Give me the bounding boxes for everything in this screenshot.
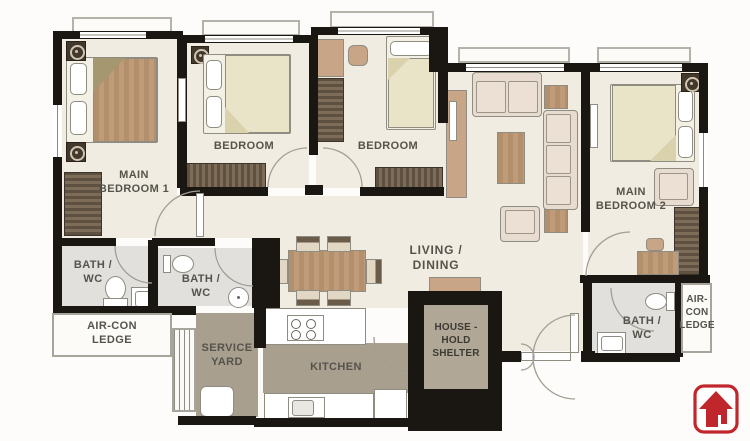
room-label-bath-3: BATH / WC bbox=[612, 314, 672, 342]
door-arc bbox=[268, 148, 307, 187]
door-arc bbox=[115, 246, 152, 283]
door-arc bbox=[374, 337, 408, 371]
label-line: BEDROOM 1 bbox=[86, 182, 182, 196]
label-line: BATH / bbox=[66, 258, 120, 272]
room-label-service-yard: SERVICE YARD bbox=[194, 341, 260, 369]
room-label-main-bedroom-2: MAIN BEDROOM 2 bbox=[592, 185, 670, 213]
label-line: MAIN bbox=[86, 168, 182, 182]
label-line: LEDGE bbox=[678, 320, 716, 333]
label-line: HOUSE - bbox=[424, 322, 488, 335]
room-label-aircon-ledge-left: AIR-CON LEDGE bbox=[60, 319, 164, 347]
room-label-bath-1: BATH / WC bbox=[66, 258, 120, 286]
label-line: BATH / bbox=[174, 272, 228, 286]
label-line: AIR-CON bbox=[60, 319, 164, 333]
floor-plan: MAIN BEDROOM 1 BEDROOM BEDROOM MAIN BEDR… bbox=[0, 0, 750, 441]
room-label-aircon-ledge-right: AIR- CON LEDGE bbox=[678, 294, 716, 332]
label-line: MAIN bbox=[592, 185, 670, 199]
room-label-kitchen: KITCHEN bbox=[303, 360, 369, 374]
door-arc bbox=[533, 315, 575, 357]
room-label-bath-2: BATH / WC bbox=[174, 272, 228, 300]
room-label-main-bedroom-1: MAIN BEDROOM 1 bbox=[86, 168, 182, 196]
door-arc bbox=[521, 344, 534, 370]
door-arc bbox=[155, 191, 200, 236]
label-line: BATH / bbox=[612, 314, 672, 328]
label-line: LEDGE bbox=[60, 333, 164, 347]
room-label-bedroom-mid: BEDROOM bbox=[350, 139, 426, 153]
label-line: AIR- bbox=[678, 294, 716, 307]
label-line: SHELTER bbox=[424, 348, 488, 361]
label-line: YARD bbox=[194, 355, 260, 369]
label-line: HOLD bbox=[424, 335, 488, 348]
label-line: WC bbox=[612, 328, 672, 342]
room-label-household-shelter: HOUSE - HOLD SHELTER bbox=[424, 322, 488, 360]
door-arc bbox=[323, 148, 362, 187]
house-arrow-logo-icon bbox=[693, 384, 739, 434]
door-arc bbox=[586, 232, 630, 276]
door-arc bbox=[533, 357, 575, 399]
room-label-bedroom-left: BEDROOM bbox=[206, 139, 282, 153]
door-arcs-layer bbox=[0, 0, 750, 441]
label-line: WC bbox=[66, 272, 120, 286]
label-line: CON bbox=[678, 307, 716, 320]
room-label-living-dining: LIVING / DINING bbox=[385, 243, 487, 274]
label-line: WC bbox=[174, 286, 228, 300]
label-line: SERVICE bbox=[194, 341, 260, 355]
label-line: BEDROOM 2 bbox=[592, 199, 670, 213]
